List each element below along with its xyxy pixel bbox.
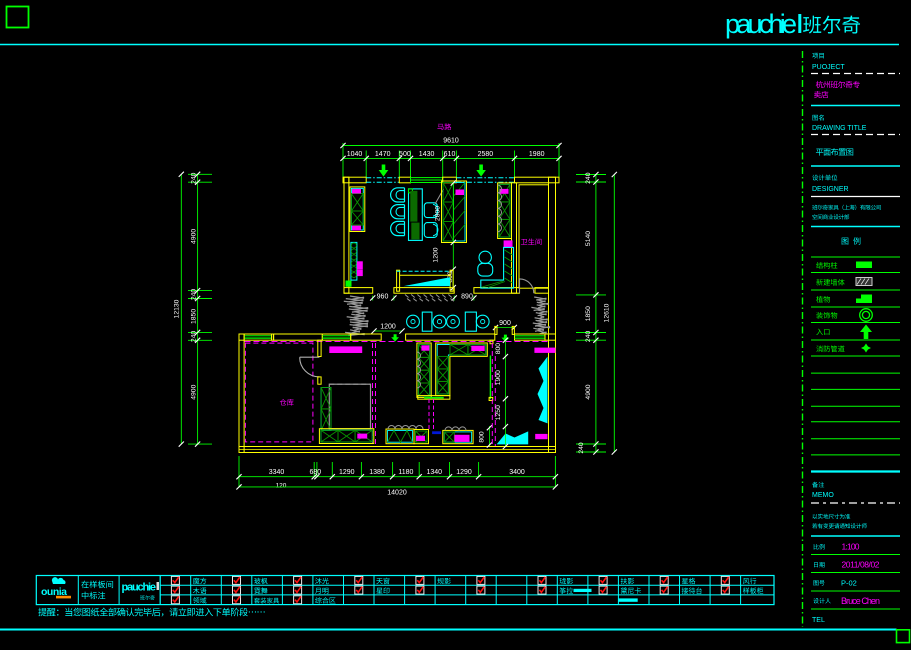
svg-text:3340: 3340 bbox=[269, 469, 285, 476]
svg-text:1200: 1200 bbox=[380, 323, 396, 330]
svg-text:1250: 1250 bbox=[495, 405, 502, 420]
svg-text:240: 240 bbox=[190, 172, 197, 184]
svg-text:240: 240 bbox=[190, 289, 197, 301]
svg-text:1340: 1340 bbox=[427, 469, 443, 476]
svg-text:240: 240 bbox=[585, 331, 592, 343]
svg-text:500: 500 bbox=[399, 151, 411, 158]
svg-text:1850: 1850 bbox=[190, 309, 197, 324]
svg-text:Bruce Chen: Bruce Chen bbox=[841, 596, 880, 606]
svg-text:800: 800 bbox=[495, 343, 502, 355]
svg-text:610: 610 bbox=[444, 151, 456, 158]
svg-text:240: 240 bbox=[578, 442, 585, 454]
svg-text:DESIGNER: DESIGNER bbox=[812, 186, 849, 193]
svg-text:1200: 1200 bbox=[433, 247, 440, 262]
svg-text:5140: 5140 bbox=[585, 231, 592, 246]
svg-text:4900: 4900 bbox=[190, 384, 197, 399]
svg-text:680: 680 bbox=[309, 469, 321, 476]
svg-text:1850: 1850 bbox=[585, 306, 592, 321]
svg-text:12130: 12130 bbox=[174, 299, 181, 318]
svg-text:9610: 9610 bbox=[443, 138, 459, 145]
svg-text:pauchie: pauchie bbox=[725, 9, 796, 39]
svg-text:4900: 4900 bbox=[585, 384, 592, 399]
svg-text:240: 240 bbox=[585, 172, 592, 184]
svg-text:1290: 1290 bbox=[339, 469, 355, 476]
svg-text:PUOJECT: PUOJECT bbox=[812, 64, 845, 71]
svg-text:12610: 12610 bbox=[604, 303, 611, 322]
svg-text:800: 800 bbox=[479, 431, 486, 443]
svg-text:1470: 1470 bbox=[375, 151, 391, 158]
svg-text:1290: 1290 bbox=[456, 469, 472, 476]
svg-text:2011/08/02: 2011/08/02 bbox=[842, 560, 880, 570]
svg-text:pauchie: pauchie bbox=[122, 582, 156, 594]
svg-text:1380: 1380 bbox=[369, 469, 385, 476]
svg-text:1980: 1980 bbox=[529, 151, 545, 158]
svg-text:240: 240 bbox=[190, 331, 197, 343]
svg-text:MEMO: MEMO bbox=[812, 492, 834, 499]
svg-text:960: 960 bbox=[377, 294, 389, 301]
svg-text:3400: 3400 bbox=[509, 469, 525, 476]
svg-text:1430: 1430 bbox=[419, 151, 435, 158]
svg-text:P-02: P-02 bbox=[841, 579, 857, 588]
svg-text:2580: 2580 bbox=[478, 151, 494, 158]
svg-text:120: 120 bbox=[276, 483, 287, 490]
svg-text:1180: 1180 bbox=[398, 469, 413, 476]
svg-text:1040: 1040 bbox=[347, 151, 363, 158]
svg-text:890: 890 bbox=[461, 294, 473, 301]
svg-text:4900: 4900 bbox=[190, 229, 197, 244]
svg-text:TEL: TEL bbox=[812, 617, 825, 624]
svg-text:14020: 14020 bbox=[387, 490, 407, 497]
svg-text:1900: 1900 bbox=[495, 370, 502, 385]
svg-text:DRAWING TITLE: DRAWING TITLE bbox=[812, 125, 867, 132]
svg-text:2800: 2800 bbox=[435, 206, 442, 221]
svg-text:900: 900 bbox=[499, 320, 511, 327]
svg-text:1:100: 1:100 bbox=[842, 542, 860, 552]
